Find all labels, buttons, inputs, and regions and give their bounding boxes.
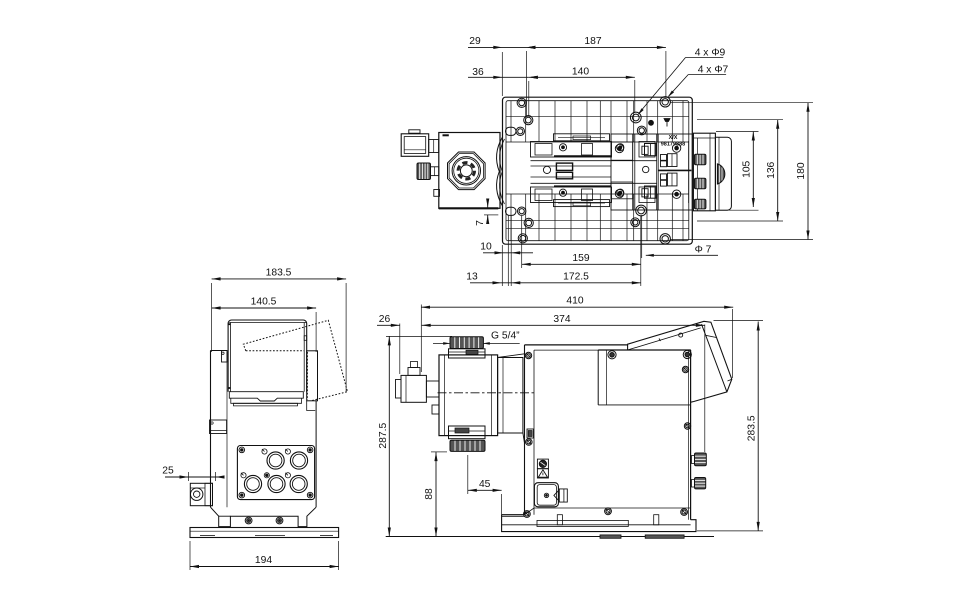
svg-text:88: 88 xyxy=(424,488,435,500)
svg-text:98179888: 98179888 xyxy=(661,142,685,148)
svg-text:4 x Φ9: 4 x Φ9 xyxy=(695,48,726,59)
svg-text:183.5: 183.5 xyxy=(266,267,292,278)
svg-text:180: 180 xyxy=(796,162,807,179)
svg-text:172.5: 172.5 xyxy=(563,271,589,282)
svg-text:7: 7 xyxy=(475,220,486,226)
svg-text:G 5/4”: G 5/4” xyxy=(491,330,520,341)
svg-text:10: 10 xyxy=(480,241,492,252)
svg-text:410: 410 xyxy=(566,296,583,307)
svg-text:136: 136 xyxy=(766,161,777,178)
svg-text:4 x Φ7: 4 x Φ7 xyxy=(698,65,729,76)
svg-text:36: 36 xyxy=(472,67,484,78)
svg-text:283.5: 283.5 xyxy=(746,415,757,441)
svg-text:Φ 7: Φ 7 xyxy=(695,244,712,255)
svg-text:29: 29 xyxy=(469,36,481,47)
svg-text:287.5: 287.5 xyxy=(378,423,389,449)
svg-text:25: 25 xyxy=(162,466,174,477)
svg-text:187: 187 xyxy=(584,36,601,47)
svg-text:374: 374 xyxy=(553,314,570,325)
svg-text:26: 26 xyxy=(379,314,391,325)
svg-text:159: 159 xyxy=(572,253,589,264)
svg-text:45: 45 xyxy=(479,479,491,490)
svg-text:13: 13 xyxy=(466,271,478,282)
svg-text:X/X: X/X xyxy=(669,135,678,141)
svg-text:140: 140 xyxy=(572,66,589,77)
svg-text:140.5: 140.5 xyxy=(251,297,277,308)
svg-text:105: 105 xyxy=(742,160,753,177)
svg-text:194: 194 xyxy=(255,555,272,566)
